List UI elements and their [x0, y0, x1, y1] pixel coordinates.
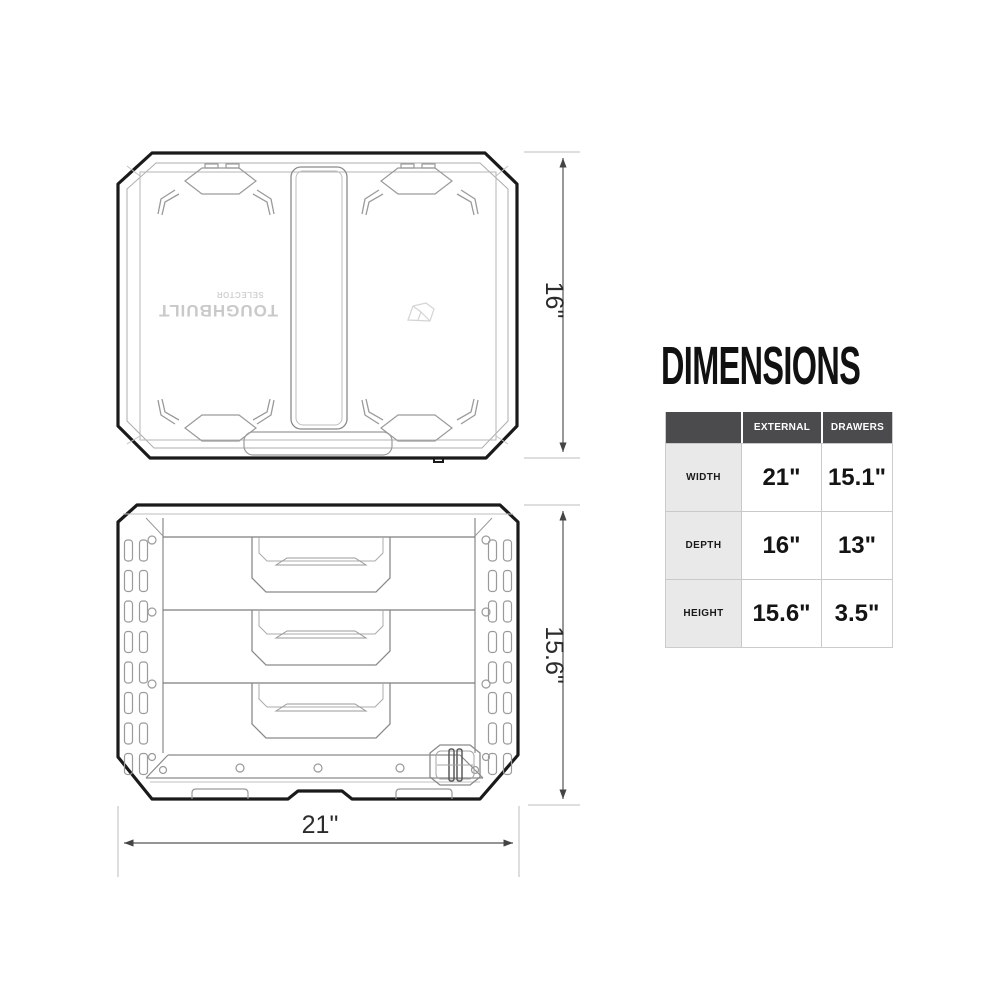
header-cell-empty	[666, 412, 741, 443]
dimensions-panel: DIMENSIONS EXTERNAL DRAWERS WIDTH 21" 15…	[661, 342, 893, 390]
dimensions-title: DIMENSIONS	[661, 342, 893, 390]
brand-subtext: SELECTOR	[216, 290, 263, 299]
brand-embossing: TOUGHBUILT SELECTOR	[158, 290, 278, 320]
width-dimension: 21"	[118, 806, 519, 877]
value-width-drawers: 15.1"	[821, 443, 892, 511]
row-label-width: WIDTH	[666, 443, 741, 511]
latch	[430, 745, 480, 785]
logo-mark-icon	[408, 303, 434, 321]
header-cell-external: EXTERNAL	[741, 412, 821, 443]
header-cell-drawers: DRAWERS	[821, 412, 892, 443]
dimensions-title-text: DIMENSIONS	[661, 342, 860, 390]
side-panel-slots	[125, 540, 512, 775]
value-width-external: 21"	[741, 443, 821, 511]
product-dimensions-image: TOUGHBUILT SELECTOR 16"	[0, 0, 1000, 1000]
width-dimension-label: 21"	[302, 811, 339, 839]
front-view-drawing	[118, 505, 518, 799]
dimensions-table: EXTERNAL DRAWERS WIDTH 21" 15.1" DEPTH 1…	[665, 412, 893, 648]
depth-dimension-label: 16"	[540, 282, 568, 319]
row-label-depth: DEPTH	[666, 511, 741, 579]
value-depth-drawers: 13"	[821, 511, 892, 579]
top-view-drawing: TOUGHBUILT SELECTOR	[118, 153, 517, 462]
top-latch-outline	[244, 432, 392, 455]
row-label-height: HEIGHT	[666, 579, 741, 647]
value-depth-external: 16"	[741, 511, 821, 579]
depth-dimension: 16"	[524, 152, 580, 458]
top-handle-strip	[291, 167, 347, 429]
height-dimension: 15.6"	[524, 505, 580, 805]
value-height-drawers: 3.5"	[821, 579, 892, 647]
drawer-handles	[252, 537, 390, 738]
value-height-external: 15.6"	[741, 579, 821, 647]
brand-text: TOUGHBUILT	[158, 301, 278, 320]
height-dimension-label: 15.6"	[540, 626, 568, 684]
